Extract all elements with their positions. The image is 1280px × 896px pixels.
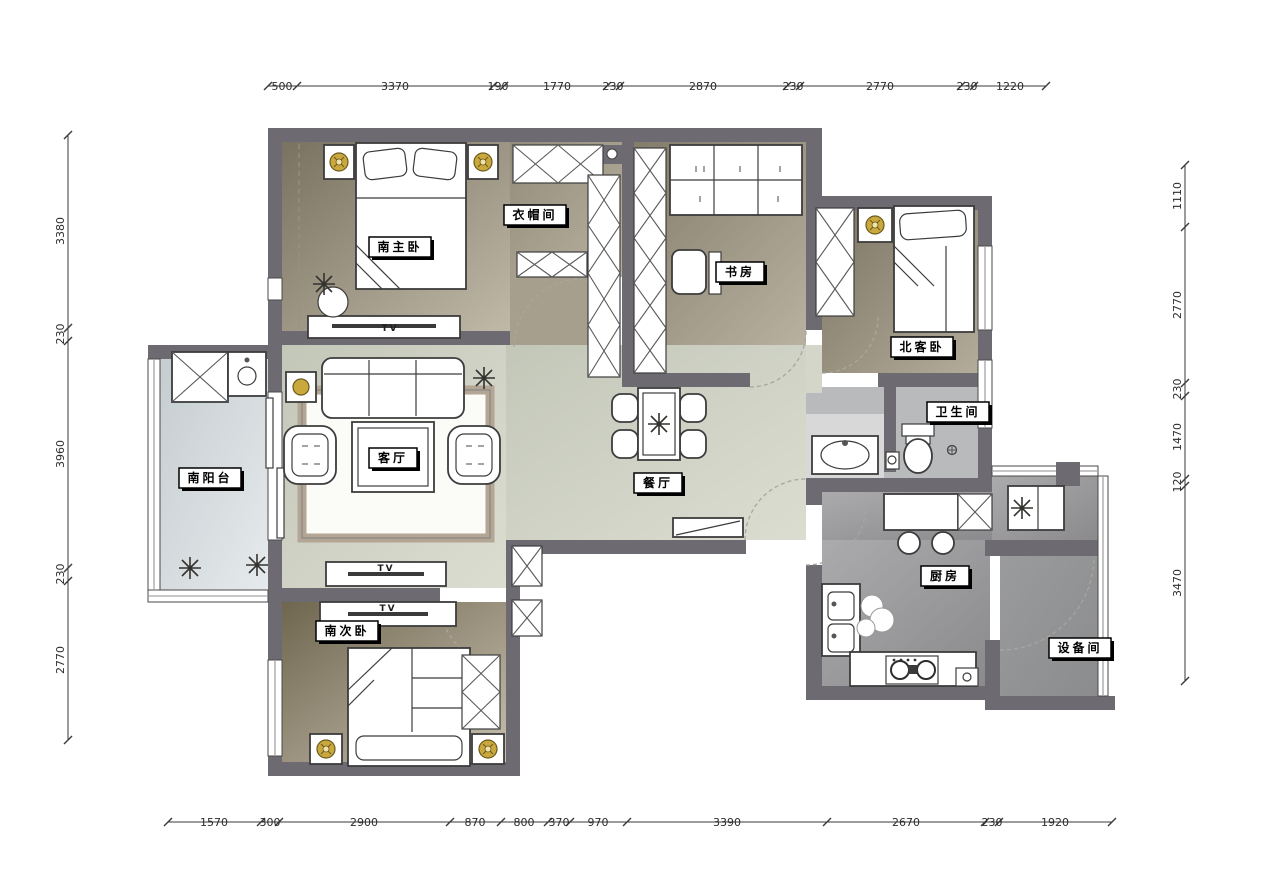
room-label-dining-room: 餐厅 [634, 473, 685, 496]
vanity-sink [812, 436, 878, 474]
sofa [322, 358, 464, 418]
dimension-chain-top: 500 3370 190 1770 230 2870 230 2770 230 … [264, 80, 1050, 93]
desk-and-chair [672, 250, 721, 294]
svg-text:卫生间: 卫生间 [935, 404, 980, 419]
dining-chair [612, 394, 638, 422]
dim-top-6: 230 [783, 80, 804, 93]
dim-bottom-5: 370 [549, 816, 570, 829]
dim-top-3: 1770 [543, 80, 571, 93]
tv-label-master: TV [381, 324, 398, 334]
balcony-sliding-door [266, 392, 284, 540]
dim-top-5: 2870 [689, 80, 717, 93]
floor-plan-page: TV [0, 0, 1280, 892]
room-label-study: 书房 [716, 262, 767, 285]
second-bed [348, 648, 470, 766]
bar-stool [898, 532, 920, 554]
dim-left-2: 3960 [54, 440, 67, 468]
floor-drain [948, 446, 957, 455]
room-label-bathroom: 卫生间 [927, 402, 992, 425]
dim-right-2: 230 [1171, 379, 1184, 400]
study-wall-cabinets [670, 145, 802, 215]
room-label-guest-bedroom: 北客卧 [891, 337, 956, 360]
dim-top-2: 190 [488, 80, 509, 93]
shoe-bench [673, 518, 743, 537]
equipment-room-floor [1000, 556, 1098, 696]
guest-single-bed [894, 206, 974, 332]
kitchen-bar-counter [884, 494, 992, 530]
svg-text:厨房: 厨房 [930, 568, 960, 583]
dim-right-0: 1110 [1171, 182, 1184, 210]
dim-left-0: 3380 [54, 217, 67, 245]
dim-bottom-9: 230 [982, 816, 1003, 829]
toilet [902, 424, 934, 473]
dim-right-5: 3470 [1171, 569, 1184, 597]
dim-bottom-1: 300 [260, 816, 281, 829]
svg-text:北客卧: 北客卧 [899, 339, 944, 354]
svg-text:客厅: 客厅 [377, 450, 408, 465]
svg-text:设备间: 设备间 [1057, 640, 1102, 655]
master-double-bed [356, 143, 466, 289]
dim-right-3: 1470 [1171, 423, 1184, 451]
room-label-cloakroom: 衣帽间 [504, 205, 569, 228]
dim-right-1: 2770 [1171, 291, 1184, 319]
living-tv-cabinet: TV [326, 562, 446, 586]
room-label-second-bedroom: 南次卧 [316, 621, 381, 644]
dim-bottom-0: 1570 [200, 816, 228, 829]
dining-chair [680, 394, 706, 422]
dim-bottom-6: 970 [588, 816, 609, 829]
dim-top-1: 3370 [381, 80, 409, 93]
dim-bottom-10: 1920 [1041, 816, 1069, 829]
side-table [286, 372, 316, 402]
tv-label-living: TV [377, 564, 394, 574]
svg-text:书房: 书房 [725, 264, 755, 279]
dim-bottom-2: 2900 [350, 816, 378, 829]
washing-machine [172, 352, 228, 402]
dining-table [638, 388, 680, 460]
dim-top-7: 2770 [866, 80, 894, 93]
hall-passage-floor [806, 345, 822, 393]
tv-label-second: TV [379, 604, 396, 614]
dining-chair [612, 430, 638, 458]
dim-top-8: 230 [957, 80, 978, 93]
room-label-balcony: 南阳台 [179, 468, 244, 491]
svg-text:衣帽间: 衣帽间 [512, 207, 557, 222]
room-label-kitchen: 厨房 [921, 566, 972, 589]
dim-left-4: 2770 [54, 646, 67, 674]
dim-top-9: 1220 [996, 80, 1024, 93]
dim-right-4: 120 [1171, 472, 1184, 493]
study-bookcase [634, 148, 666, 373]
dim-bottom-3: 870 [465, 816, 486, 829]
dim-bottom-7: 3390 [713, 816, 741, 829]
dim-top-4: 230 [603, 80, 624, 93]
balcony-sink [228, 352, 266, 396]
dimension-chain-bottom: 1570 300 2900 870 800 370 970 3390 2670 … [164, 816, 1116, 829]
corner-detail [607, 149, 617, 159]
bar-stool [932, 532, 954, 554]
armchair-left [284, 426, 336, 484]
room-label-master-bedroom: 南主卧 [369, 237, 434, 260]
dimension-chain-right: 1110 2770 230 1470 120 3470 [1171, 161, 1189, 685]
svg-text:南阳台: 南阳台 [187, 470, 232, 485]
room-label-equipment-room: 设备间 [1049, 638, 1114, 661]
guest-wardrobe [816, 208, 854, 316]
second-wardrobe [462, 655, 500, 729]
dim-left-1: 230 [54, 324, 67, 345]
dim-bottom-4: 800 [514, 816, 535, 829]
armchair-right [448, 426, 500, 484]
dim-left-3: 230 [54, 564, 67, 585]
svg-text:南主卧: 南主卧 [377, 239, 422, 254]
svg-text:南次卧: 南次卧 [324, 623, 369, 638]
guest-bedroom-furniture [816, 206, 974, 332]
master-tv-cabinet: TV [308, 316, 460, 338]
room-label-living-room: 客厅 [369, 448, 420, 471]
master-side-window [268, 278, 282, 300]
dining-chair [680, 430, 706, 458]
dim-bottom-8: 2670 [892, 816, 920, 829]
svg-text:餐厅: 餐厅 [643, 475, 673, 490]
dim-top-0: 500 [272, 80, 293, 93]
fridge [1008, 486, 1064, 530]
dimension-chain-left: 3380 230 3960 230 2770 [54, 131, 72, 744]
floor-plan-canvas: TV [0, 0, 1280, 892]
